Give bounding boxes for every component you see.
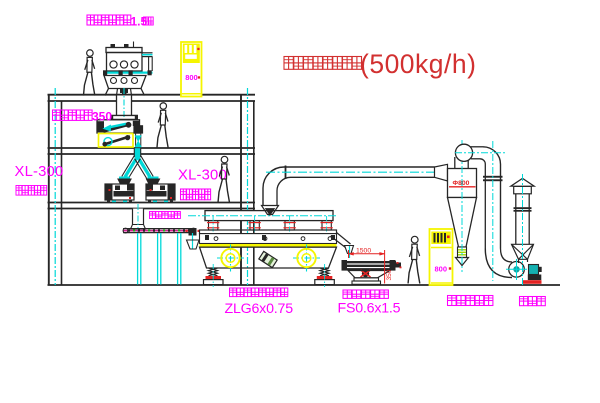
svg-text:800: 800	[435, 265, 448, 274]
svg-text:350: 350	[386, 269, 393, 280]
svg-text:350: 350	[92, 110, 112, 124]
svg-text:ZLG6x0.75: ZLG6x0.75	[225, 301, 294, 317]
svg-text:(500kg/h): (500kg/h)	[360, 49, 476, 79]
svg-text:1500: 1500	[356, 248, 371, 255]
svg-text:FS0.6x1.5: FS0.6x1.5	[338, 301, 401, 317]
svg-text:800: 800	[185, 73, 198, 82]
svg-text:XL-300: XL-300	[15, 164, 64, 180]
svg-text:Φ800: Φ800	[453, 180, 470, 187]
